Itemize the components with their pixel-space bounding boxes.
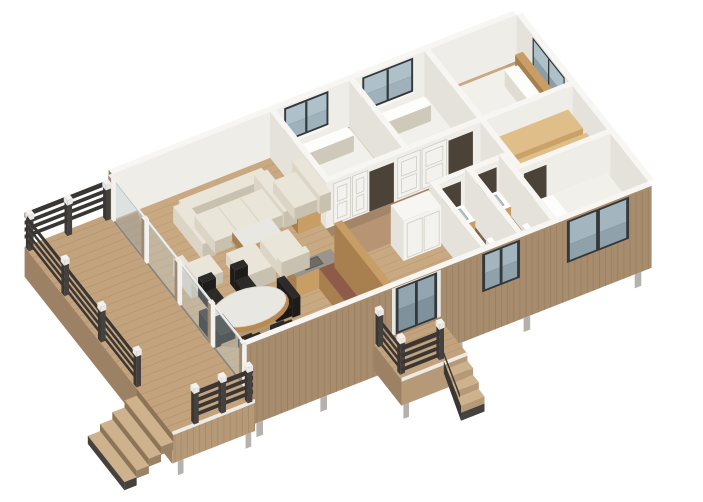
footing [635, 272, 642, 289]
footing [256, 421, 263, 438]
floorplan-3d-render-viewport [0, 0, 703, 502]
footing [524, 316, 531, 333]
footing [320, 395, 327, 412]
floorplan-3d-render [0, 0, 703, 502]
